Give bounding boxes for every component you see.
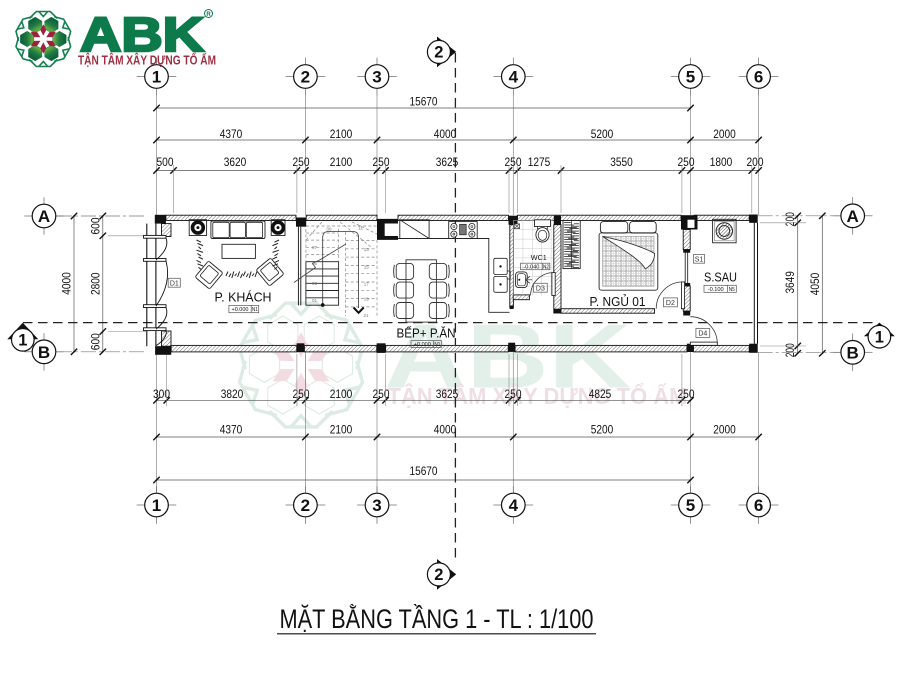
svg-text:B: B [38, 343, 50, 362]
svg-text:-0.100: -0.100 [708, 287, 724, 293]
svg-text:N1: N1 [434, 342, 440, 348]
svg-text:200: 200 [747, 156, 764, 169]
svg-text:4050: 4050 [809, 272, 822, 295]
svg-text:D3: D3 [536, 285, 545, 292]
svg-text:15670: 15670 [410, 96, 438, 109]
svg-text:5200: 5200 [591, 128, 614, 141]
svg-text:2: 2 [434, 44, 443, 62]
svg-text:4825: 4825 [589, 388, 612, 401]
svg-text:TẬN TÂM XÂY DỰNG TỔ ẤM: TẬN TÂM XÂY DỰNG TỔ ẤM [78, 53, 216, 68]
svg-text:05: 05 [312, 261, 318, 266]
svg-text:250: 250 [293, 156, 310, 169]
svg-text:250: 250 [505, 156, 522, 169]
svg-text:1: 1 [152, 68, 161, 87]
svg-text:2100: 2100 [330, 424, 353, 437]
svg-text:4: 4 [509, 68, 519, 87]
svg-text:4370: 4370 [220, 128, 243, 141]
svg-text:2800: 2800 [89, 272, 102, 295]
svg-text:250: 250 [373, 156, 390, 169]
svg-text:A: A [847, 207, 859, 226]
svg-text:19: 19 [364, 296, 370, 301]
svg-text:4000: 4000 [434, 128, 457, 141]
svg-text:15: 15 [364, 264, 370, 269]
svg-text:D2: D2 [666, 300, 675, 307]
svg-text:2000: 2000 [713, 424, 736, 437]
svg-text:200: 200 [784, 212, 797, 226]
svg-text:4370: 4370 [220, 424, 243, 437]
svg-text:3550: 3550 [610, 156, 633, 169]
svg-text:600: 600 [89, 217, 102, 234]
svg-text:250: 250 [678, 156, 695, 169]
svg-text:N5: N5 [729, 287, 735, 293]
svg-text:5200: 5200 [591, 424, 614, 437]
svg-text:07: 07 [312, 245, 318, 250]
svg-text:3: 3 [372, 496, 381, 515]
svg-text:+0.000: +0.000 [232, 307, 249, 313]
svg-text:5: 5 [686, 68, 695, 87]
svg-text:4000: 4000 [434, 424, 457, 437]
svg-text:1800: 1800 [710, 156, 733, 169]
svg-text:3649: 3649 [784, 271, 797, 294]
svg-text:S.SAU: S.SAU [704, 269, 737, 284]
svg-text:+0.000: +0.000 [414, 342, 431, 348]
svg-text:N2: N2 [543, 264, 549, 270]
svg-text:15670: 15670 [410, 465, 438, 478]
svg-text:2: 2 [434, 566, 443, 584]
svg-text:S1: S1 [695, 256, 704, 263]
svg-text:250: 250 [678, 388, 695, 401]
svg-text:03: 03 [312, 281, 318, 286]
svg-text:R: R [206, 12, 211, 18]
svg-text:11: 11 [358, 226, 363, 231]
svg-text:3620: 3620 [224, 156, 247, 169]
svg-text:6: 6 [754, 68, 763, 87]
svg-text:5: 5 [686, 496, 695, 515]
svg-text:A: A [38, 207, 50, 226]
svg-text:2100: 2100 [330, 128, 353, 141]
svg-text:4: 4 [509, 496, 519, 515]
svg-text:01: 01 [312, 298, 318, 303]
svg-text:WC1: WC1 [531, 253, 547, 262]
svg-text:21: 21 [363, 313, 369, 318]
svg-text:09: 09 [326, 227, 332, 232]
svg-text:250: 250 [293, 388, 310, 401]
svg-text:600: 600 [89, 333, 102, 350]
svg-text:4000: 4000 [61, 272, 74, 295]
svg-text:3820: 3820 [221, 388, 244, 401]
svg-text:17: 17 [364, 282, 370, 287]
svg-text:1: 1 [875, 329, 884, 347]
svg-text:200: 200 [784, 343, 797, 357]
svg-text:2: 2 [301, 68, 310, 87]
svg-text:TẬN TÂM XÂY DỰNG TỔ ẤM: TẬN TÂM XÂY DỰNG TỔ ẤM [388, 382, 688, 409]
svg-text:N1: N1 [252, 307, 258, 313]
svg-text:13: 13 [364, 247, 370, 252]
svg-text:P. KHÁCH: P. KHÁCH [215, 290, 272, 305]
svg-text:300: 300 [153, 388, 170, 401]
svg-text:B: B [847, 343, 859, 362]
svg-text:P. NGỦ 01: P. NGỦ 01 [590, 294, 646, 309]
svg-text:250: 250 [373, 388, 390, 401]
svg-text:1275: 1275 [528, 156, 551, 169]
svg-text:D4: D4 [698, 331, 707, 338]
svg-text:-0.040: -0.040 [523, 264, 539, 270]
svg-text:500: 500 [157, 156, 174, 169]
svg-text:2100: 2100 [330, 156, 353, 169]
svg-text:3: 3 [372, 68, 381, 87]
svg-text:MẶT BẰNG TẦNG 1 - TL : 1/100: MẶT BẰNG TẦNG 1 - TL : 1/100 [280, 604, 594, 634]
svg-text:BẾP+ P.ĂN: BẾP+ P.ĂN [397, 326, 456, 341]
svg-text:6: 6 [754, 496, 763, 515]
svg-text:1: 1 [18, 332, 27, 350]
svg-text:250: 250 [505, 388, 522, 401]
svg-text:2100: 2100 [330, 388, 353, 401]
svg-text:1: 1 [152, 496, 161, 515]
svg-text:2: 2 [301, 496, 310, 515]
svg-text:2000: 2000 [713, 128, 736, 141]
svg-text:D1: D1 [170, 280, 179, 287]
